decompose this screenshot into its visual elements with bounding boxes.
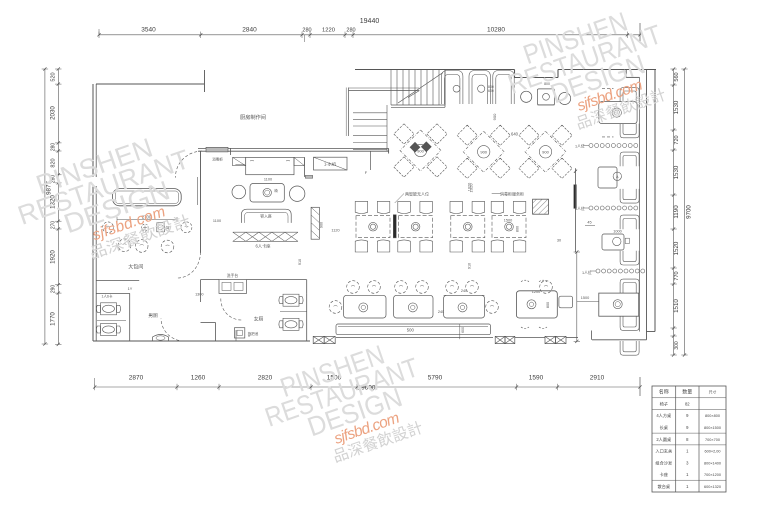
- svg-text:1人位: 1人位: [575, 144, 585, 149]
- svg-text:600×2,00: 600×2,00: [705, 450, 721, 454]
- svg-text:女厕: 女厕: [254, 316, 264, 323]
- svg-text:280: 280: [302, 28, 311, 34]
- svg-text:82: 82: [685, 401, 690, 406]
- svg-text:4人方桌: 4人方桌: [656, 412, 672, 419]
- svg-text:尺寸: 尺寸: [709, 390, 717, 395]
- svg-text:容入座: 容入座: [260, 214, 272, 219]
- svg-text:1120: 1120: [331, 229, 339, 233]
- svg-text:560: 560: [674, 72, 680, 81]
- svg-text:1100: 1100: [264, 178, 272, 182]
- svg-text:45: 45: [587, 221, 591, 225]
- svg-text:1人6卡: 1人6卡: [102, 294, 113, 299]
- svg-text:椅子: 椅子: [660, 400, 668, 406]
- svg-text:1500: 1500: [581, 296, 589, 300]
- svg-text:散台桌: 散台桌: [658, 483, 671, 490]
- svg-text:椅: 椅: [274, 188, 278, 193]
- svg-text:280: 280: [51, 143, 57, 152]
- svg-text:520: 520: [51, 72, 57, 81]
- svg-text:1100: 1100: [213, 219, 221, 223]
- svg-text:1人位: 1人位: [575, 206, 585, 211]
- svg-text:1530: 1530: [673, 165, 680, 179]
- svg-text:1590: 1590: [529, 375, 544, 382]
- svg-text:700×1200: 700×1200: [704, 473, 721, 477]
- svg-text:1500: 1500: [504, 219, 512, 223]
- svg-text:洗手台: 洗手台: [227, 273, 239, 278]
- svg-text:800: 800: [516, 226, 520, 232]
- svg-text:厨房制作间: 厨房制作间: [240, 113, 266, 121]
- svg-text:1Y: 1Y: [128, 287, 133, 291]
- svg-text:3540: 3540: [141, 27, 156, 34]
- svg-text:640: 640: [511, 132, 519, 137]
- svg-text:900: 900: [320, 222, 324, 228]
- svg-text:2820: 2820: [258, 375, 273, 382]
- svg-text:240: 240: [461, 289, 467, 293]
- svg-text:800×1500: 800×1500: [704, 426, 721, 430]
- svg-text:1200: 1200: [532, 290, 540, 294]
- svg-text:10280: 10280: [487, 27, 505, 34]
- svg-text:30: 30: [557, 239, 561, 243]
- svg-text:消毒柜服务柜: 消毒柜服务柜: [500, 191, 524, 197]
- svg-text:1190: 1190: [673, 205, 680, 219]
- svg-text:1220: 1220: [322, 28, 335, 34]
- svg-text:1000: 1000: [613, 230, 621, 234]
- svg-text:1770: 1770: [50, 312, 57, 326]
- svg-text:拖把池: 拖把池: [248, 331, 259, 336]
- svg-text:280: 280: [346, 28, 355, 34]
- svg-text:数量: 数量: [682, 389, 692, 396]
- svg-text:800×1400: 800×1400: [704, 461, 721, 465]
- svg-text:2840: 2840: [242, 27, 257, 34]
- svg-text:800×800: 800×800: [705, 414, 720, 418]
- svg-text:600: 600: [461, 327, 465, 333]
- svg-text:卡座: 卡座: [660, 471, 668, 478]
- svg-text:1020: 1020: [468, 183, 472, 191]
- svg-text:名称: 名称: [659, 389, 669, 396]
- svg-text:2870: 2870: [129, 375, 144, 382]
- svg-text:5790: 5790: [428, 375, 443, 382]
- svg-text:6人卡座: 6人卡座: [256, 243, 271, 250]
- svg-text:9700: 9700: [686, 205, 693, 219]
- svg-text:1520: 1520: [673, 241, 680, 255]
- svg-text:910: 910: [468, 263, 472, 269]
- svg-text:1510: 1510: [673, 299, 680, 313]
- svg-text:700×700: 700×700: [705, 438, 720, 442]
- svg-text:长桌: 长桌: [660, 424, 669, 431]
- svg-text:1-水机: 1-水机: [324, 161, 337, 168]
- svg-text:910: 910: [298, 259, 302, 265]
- svg-text:组合沙发: 组合沙发: [655, 459, 673, 466]
- svg-text:2910: 2910: [590, 375, 605, 382]
- svg-text:1300: 1300: [195, 293, 203, 297]
- svg-text:770: 770: [674, 271, 680, 280]
- svg-text:19440: 19440: [360, 18, 380, 25]
- svg-text:800: 800: [546, 302, 550, 308]
- svg-text:2人圆桌: 2人圆桌: [656, 436, 672, 443]
- svg-text:1920: 1920: [50, 250, 57, 264]
- svg-text:大包间: 大包间: [128, 264, 143, 271]
- svg-text:入口玄关: 入口玄关: [655, 448, 672, 455]
- svg-text:290: 290: [51, 285, 57, 294]
- svg-text:2030: 2030: [50, 106, 57, 120]
- svg-text:240: 240: [438, 310, 444, 314]
- svg-text:600×1320: 600×1320: [704, 485, 721, 489]
- svg-text:270: 270: [51, 221, 57, 230]
- svg-text:500: 500: [407, 328, 415, 333]
- svg-text:900: 900: [492, 113, 497, 120]
- svg-text:消毒柜: 消毒柜: [212, 157, 223, 162]
- svg-text:两智能无人位: 两智能无人位: [405, 191, 429, 197]
- svg-text:720: 720: [674, 135, 680, 144]
- svg-text:1260: 1260: [191, 375, 206, 382]
- svg-text:男厕: 男厕: [148, 313, 158, 319]
- svg-text:1530: 1530: [673, 100, 680, 114]
- svg-text:300: 300: [674, 341, 680, 350]
